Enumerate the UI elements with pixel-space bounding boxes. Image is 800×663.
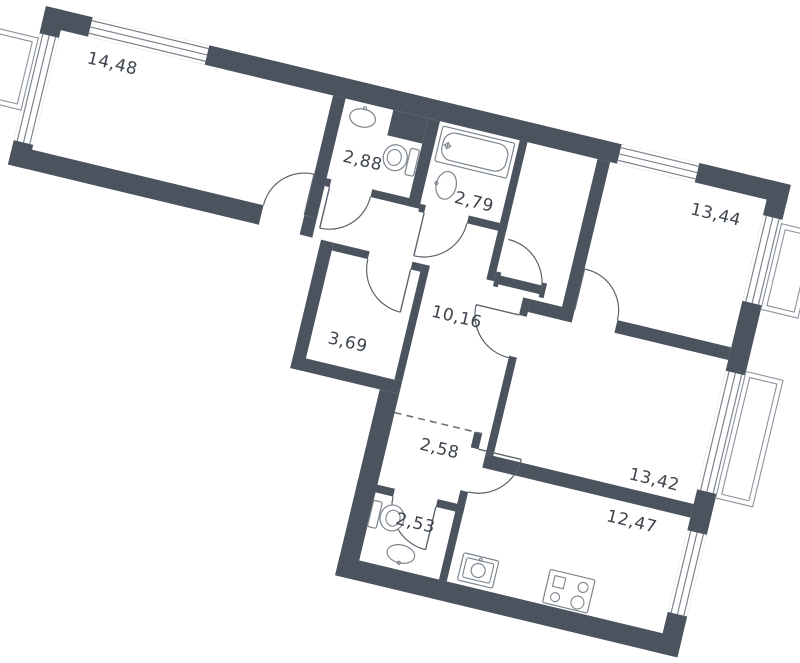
wall-storage-right xyxy=(394,264,430,382)
door-living-room xyxy=(263,164,314,215)
wall-corridor-right xyxy=(471,432,483,449)
sink-icon xyxy=(348,104,378,130)
kitchen-sink-icon xyxy=(457,553,499,589)
toilet-icon xyxy=(380,142,419,176)
wall-living-bottom xyxy=(8,145,264,225)
wall-storage-top xyxy=(332,243,370,259)
room-area-label-bathroom-large: 2,79 xyxy=(452,188,495,217)
room-area-label-corridor: 2,58 xyxy=(418,435,461,464)
plan-rotated-container: 14,48 2,88 2,79 13,44 10,16 3,69 2,58 13… xyxy=(0,0,800,663)
wall-storage-bottom xyxy=(290,355,402,394)
room-area-label-storage: 3,69 xyxy=(326,328,369,357)
door-bedroom-top xyxy=(575,269,628,320)
window-bedroom-top xyxy=(617,144,699,182)
window-kitchen-right xyxy=(668,530,707,616)
door-bathroom-small xyxy=(320,187,371,238)
wall-living-bottom-stub xyxy=(300,215,317,237)
dashed-opening xyxy=(395,413,483,434)
wall-bedroom-right-left2 xyxy=(486,356,517,456)
door-bathroom-large xyxy=(414,213,467,266)
wall-storage-top2 xyxy=(411,262,423,272)
wall-niche-right xyxy=(559,159,610,322)
room-area-label-living: 14,48 xyxy=(85,48,139,79)
wall-living-bath-divider xyxy=(304,95,345,218)
wall-storage-left xyxy=(290,240,333,371)
room-area-label-kitchen: 12,47 xyxy=(605,506,659,537)
entrance-door xyxy=(493,238,555,298)
room-area-label-bedroom-top: 13,44 xyxy=(688,199,742,230)
floor-plan-screenshot: 14,48 2,88 2,79 13,44 10,16 3,69 2,58 13… xyxy=(0,0,800,663)
room-area-label-bathroom-small: 2,88 xyxy=(341,147,384,176)
floor-plan-canvas: 14,48 2,88 2,79 13,44 10,16 3,69 2,58 13… xyxy=(0,0,800,663)
door-storage xyxy=(358,259,411,312)
sink-icon xyxy=(385,542,417,568)
wall-bottom xyxy=(335,556,682,658)
wall-bedrooms-divider2 xyxy=(614,320,731,360)
